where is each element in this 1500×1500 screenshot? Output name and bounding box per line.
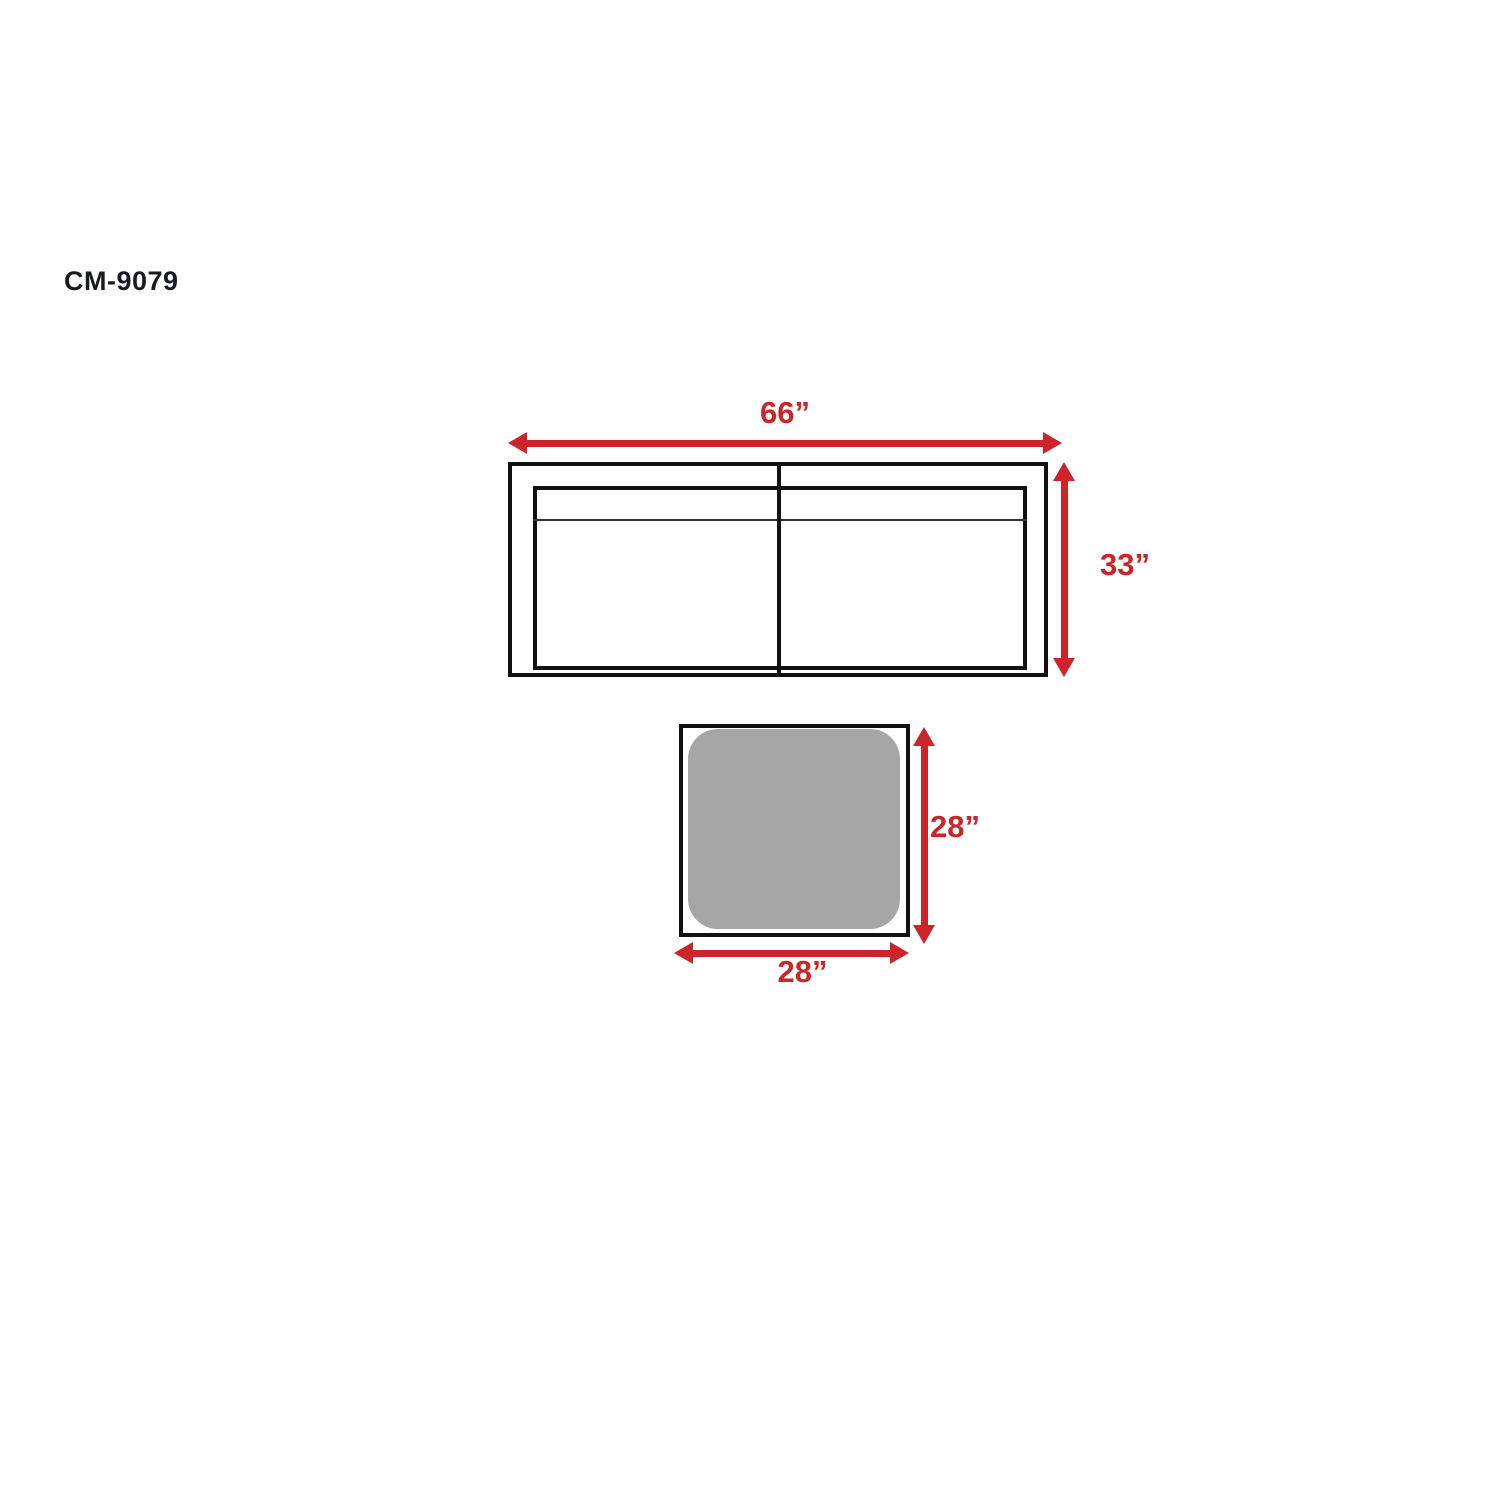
arrowhead-up-icon xyxy=(913,727,935,746)
arrowhead-down-icon xyxy=(913,925,935,944)
ottoman-depth-label: 28” xyxy=(930,811,980,842)
spec-sheet-page: { "title": "CM-9079", "colors": { "dimen… xyxy=(0,0,1500,1500)
sofa-depth-dimension-arrow xyxy=(1053,462,1075,677)
sofa-depth-label: 33” xyxy=(1100,549,1150,580)
arrow-shaft xyxy=(527,440,1043,447)
ottoman-cushion-top xyxy=(688,729,900,929)
arrow-shaft xyxy=(1061,481,1068,658)
ottoman-width-label: 28” xyxy=(680,956,925,987)
arrowhead-up-icon xyxy=(1053,462,1075,481)
sofa-outline xyxy=(508,462,1048,677)
arrowhead-down-icon xyxy=(1053,658,1075,677)
arrowhead-left-icon xyxy=(508,432,527,454)
sofa-center-divider xyxy=(777,466,781,673)
model-number: CM-9079 xyxy=(64,266,179,297)
arrowhead-right-icon xyxy=(1043,432,1062,454)
ottoman-outline xyxy=(679,724,910,937)
sofa-width-dimension-arrow xyxy=(508,432,1062,454)
sofa-width-label: 66” xyxy=(508,397,1062,428)
arrow-shaft xyxy=(921,746,928,925)
